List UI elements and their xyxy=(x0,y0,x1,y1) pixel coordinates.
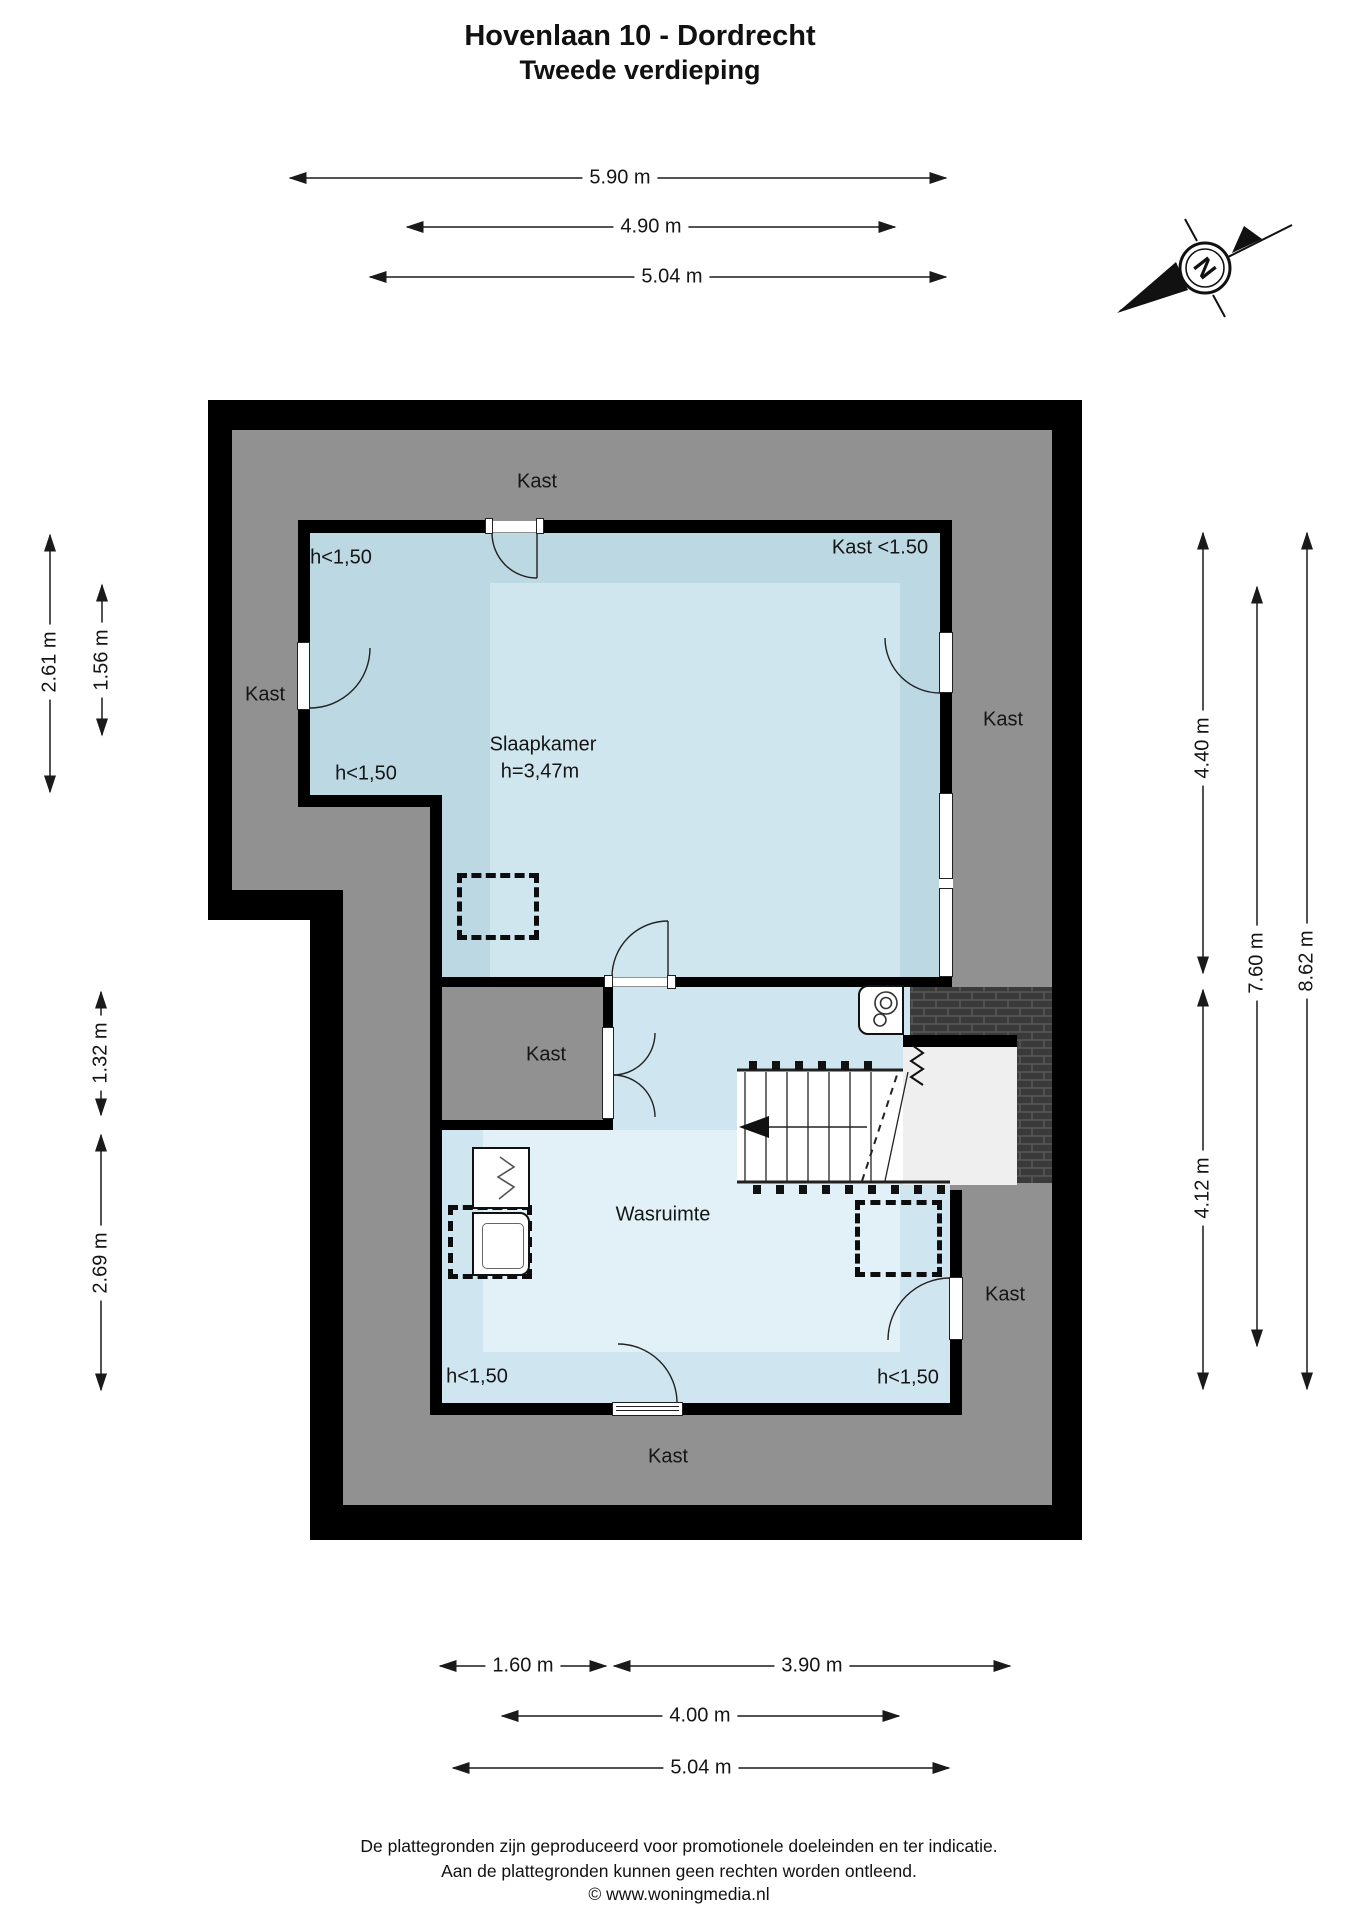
dim-left-3: 1.32 m xyxy=(90,1015,113,1090)
bedroom-east-wall xyxy=(940,520,952,632)
bedroom-south-door-opening xyxy=(612,978,670,986)
dryer xyxy=(472,1212,530,1276)
label-kast-closet: Kast xyxy=(526,1044,566,1067)
label-h150-top: h<1,50 xyxy=(310,547,372,570)
room-height-slaapkamer: h=3,47m xyxy=(501,761,579,784)
dim-bottom-1: 1.60 m xyxy=(485,1655,560,1678)
dim-right-2: 4.12 m xyxy=(1192,1150,1215,1225)
door-jamb xyxy=(485,518,493,534)
dim-bottom-4: 5.04 m xyxy=(663,1757,738,1780)
laundry-south-wall xyxy=(683,1403,962,1415)
label-kast-right-lower: Kast xyxy=(985,1284,1025,1307)
tiled-zone-top xyxy=(910,987,1052,1035)
west-door-frame xyxy=(297,642,310,710)
door-sill-lines xyxy=(616,1406,679,1407)
closet-floor xyxy=(442,987,603,1120)
label-h150-bottom-right: h<1,50 xyxy=(877,1367,939,1390)
room-name-slaapkamer: Slaapkamer xyxy=(490,734,597,757)
dim-right-3: 7.60 m xyxy=(1246,925,1269,1000)
bedroom-east-wall xyxy=(940,693,952,793)
laundry-east-wall xyxy=(950,1190,962,1277)
door-jamb xyxy=(536,518,544,534)
label-kast-right-upper: Kast xyxy=(983,709,1023,732)
dim-top-3: 5.04 m xyxy=(634,266,709,289)
laundry-south-door-sill xyxy=(612,1402,683,1416)
roof-window-dashed xyxy=(457,873,539,940)
label-kast-top: Kast xyxy=(517,471,557,494)
label-kast-left: Kast xyxy=(245,684,285,707)
dim-left-4: 2.69 m xyxy=(90,1225,113,1300)
washing-machine xyxy=(472,1147,530,1209)
room-name-wasruimte: Wasruimte xyxy=(616,1204,711,1227)
dim-left-2: 1.56 m xyxy=(91,622,114,697)
label-h150-mid: h<1,50 xyxy=(335,763,397,786)
dim-right-4: 8.62 m xyxy=(1296,923,1319,998)
closet-east-wall xyxy=(603,987,613,1027)
laundry-east-door-frame xyxy=(949,1277,963,1340)
bedroom-north-door-opening xyxy=(492,521,539,532)
roof-window-dashed xyxy=(855,1200,942,1277)
dim-right-1: 4.40 m xyxy=(1192,710,1215,785)
door-jamb xyxy=(667,975,676,989)
laundry-east-wall xyxy=(950,1340,962,1403)
disclaimer-line-1: De plattegronden zijn geproduceerd voor … xyxy=(0,1836,1358,1857)
bedroom-west-wall xyxy=(298,520,310,642)
bedroom-north-wall xyxy=(298,520,486,533)
label-kast-lt150: Kast <1.50 xyxy=(832,537,928,560)
dim-bottom-3: 4.00 m xyxy=(662,1705,737,1728)
bedroom-north-wall xyxy=(543,520,952,533)
bedroom-west-wall xyxy=(298,708,310,807)
east-window-divider xyxy=(939,878,953,889)
closet-south-wall xyxy=(430,1120,613,1130)
label-kast-bottom: Kast xyxy=(648,1446,688,1469)
door-sill-lines xyxy=(616,1410,679,1411)
bedroom-south-wall xyxy=(430,977,606,987)
bedroom-step-wall xyxy=(298,795,442,807)
dim-top-1: 5.90 m xyxy=(582,167,657,190)
copyright-line: © www.woningmedia.nl xyxy=(0,1884,1358,1905)
boiler-unit xyxy=(858,985,904,1035)
west-lower-wall xyxy=(430,795,442,1415)
floorplan-page: Hovenlaan 10 - Dordrecht Tweede verdiepi… xyxy=(0,0,1358,1920)
disclaimer-line-2: Aan de plattegronden kunnen geen rechten… xyxy=(0,1861,1358,1882)
dim-bottom-2: 3.90 m xyxy=(774,1655,849,1678)
label-h150-bottom-left: h<1,50 xyxy=(446,1366,508,1389)
compass-icon: N xyxy=(1117,219,1292,317)
tiled-zone-right xyxy=(1017,1035,1052,1183)
bedroom-south-wall xyxy=(674,977,952,987)
landing-top-wall xyxy=(903,1035,1017,1047)
laundry-south-wall xyxy=(430,1403,612,1415)
dim-top-2: 4.90 m xyxy=(613,216,688,239)
dim-left-1: 2.61 m xyxy=(39,624,62,699)
east-door-frame xyxy=(939,632,953,693)
closet-door-frame xyxy=(602,1027,614,1119)
